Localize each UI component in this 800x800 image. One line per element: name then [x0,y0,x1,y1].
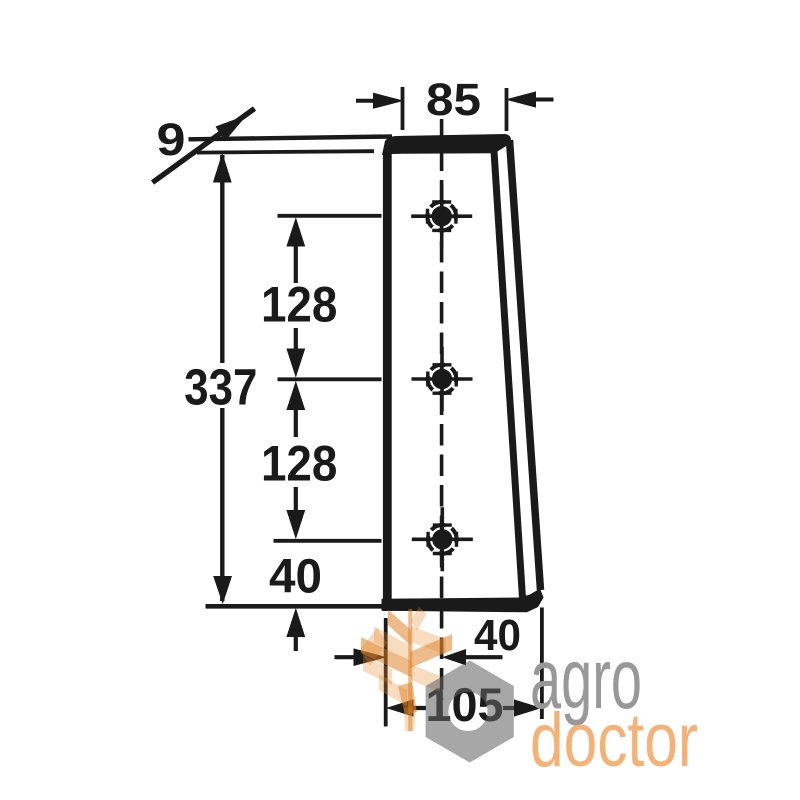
svg-text:9: 9 [157,114,186,165]
svg-text:doctor: doctor [530,698,698,783]
svg-text:128: 128 [261,436,338,492]
svg-text:337: 337 [184,359,257,416]
svg-text:40: 40 [474,611,521,660]
svg-text:128: 128 [261,277,338,333]
svg-text:40: 40 [269,551,322,604]
svg-text:85: 85 [426,74,481,125]
